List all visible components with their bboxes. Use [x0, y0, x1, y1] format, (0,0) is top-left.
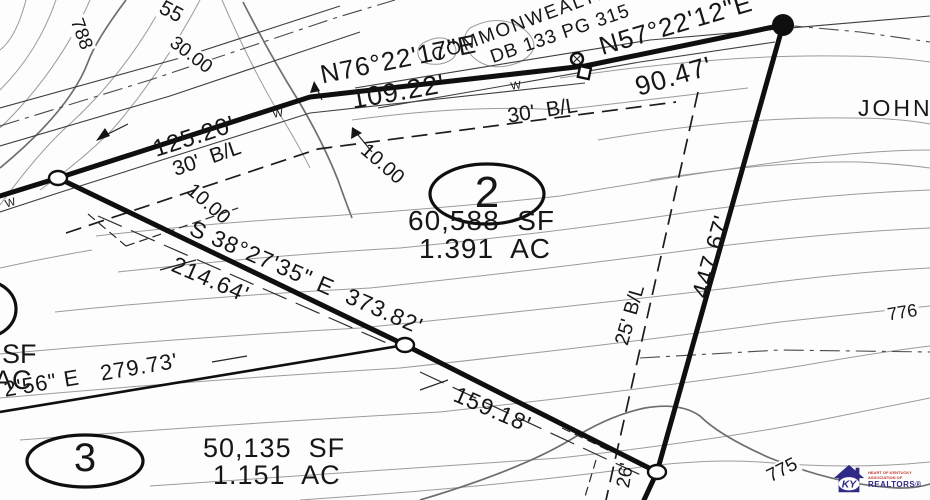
utility-box-marker [578, 66, 591, 79]
lot3-number: 3 [63, 437, 107, 479]
corner-dot-marker [772, 14, 794, 36]
logo-realtors-text: REALTORS® [868, 480, 928, 489]
lot3-area-sf: 50,135 SF [203, 434, 345, 462]
corner-marker [49, 171, 67, 185]
corner-marker [648, 465, 666, 479]
plat-survey-map: COMMONWEALTH OF DB 133 PG 315 JOHN N76°2… [0, 0, 930, 500]
adjoiner-john-label: JOHN [858, 96, 930, 120]
lot3-area-ac: 1.151 AC [213, 461, 341, 489]
distance-26-partial-label: 26' [614, 462, 638, 490]
waterline-w-marker: W [272, 108, 284, 121]
corner-marker [396, 338, 414, 352]
logo-association-text: HEART OF KENTUCKY ASSOCIATION OF [868, 471, 928, 480]
realtor-house-icon: KY [832, 463, 866, 497]
stream-centerline [640, 350, 930, 358]
logo-ky-text: KY [842, 480, 857, 491]
lot-left-area-ac-partial: AC [0, 366, 32, 394]
ky-realtors-logo: KY HEART OF KENTUCKY ASSOCIATION OF REAL… [832, 462, 928, 498]
diagonal-boundary [58, 178, 657, 472]
lot2-area-sf: 60,588 SF [408, 206, 555, 235]
waterline-w-marker: W [510, 80, 522, 93]
lot-left-partial-circle [0, 281, 16, 337]
lot2-area-ac: 1.391 AC [419, 234, 551, 263]
